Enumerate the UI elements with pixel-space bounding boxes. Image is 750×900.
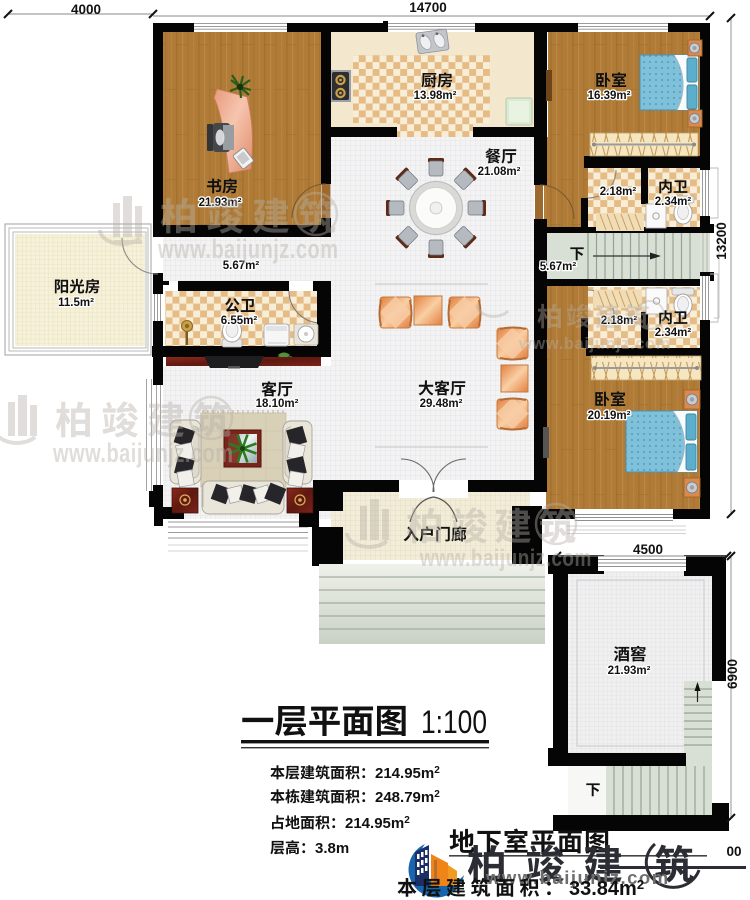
svg-text:21.93m²: 21.93m² — [608, 665, 651, 677]
svg-text:18.10m²: 18.10m² — [256, 398, 299, 410]
svg-text:www.baijunjz.com: www.baijunjz.com — [518, 335, 671, 353]
svg-text:4500: 4500 — [633, 542, 663, 557]
svg-text:11.5m²: 11.5m² — [58, 297, 94, 309]
svg-text:14700: 14700 — [409, 0, 447, 15]
svg-text:00: 00 — [726, 844, 741, 859]
svg-text:20.19m²: 20.19m² — [588, 410, 631, 422]
svg-text:6.55m²: 6.55m² — [221, 315, 258, 327]
svg-text:214.95m2: 214.95m2 — [345, 815, 410, 832]
svg-text:6900: 6900 — [725, 659, 740, 689]
svg-text:248.79m2: 248.79m2 — [375, 789, 440, 806]
svg-text:29.48m²: 29.48m² — [420, 398, 463, 410]
svg-text:214.95m2: 214.95m2 — [375, 765, 440, 782]
svg-text:13200: 13200 — [714, 222, 729, 260]
svg-text:www.baijunjz.com: www.baijunjz.com — [419, 545, 592, 572]
svg-text:16.39m²: 16.39m² — [588, 90, 631, 102]
svg-text:33.84m2: 33.84m2 — [569, 877, 644, 900]
svg-text:4000: 4000 — [71, 2, 101, 17]
svg-text:13.98m²: 13.98m² — [414, 90, 457, 102]
svg-text:www.baijunjz.com: www.baijunjz.com — [157, 234, 338, 263]
svg-text:21.08m²: 21.08m² — [478, 166, 521, 178]
svg-text:1:100: 1:100 — [421, 704, 487, 740]
svg-text:2.34m²: 2.34m² — [655, 196, 692, 208]
svg-text:www.baijunjz.com: www.baijunjz.com — [52, 438, 233, 467]
svg-text:3.8m: 3.8m — [315, 840, 349, 857]
svg-text:5.67m²: 5.67m² — [540, 261, 577, 273]
svg-text:2.18m²: 2.18m² — [600, 186, 637, 198]
